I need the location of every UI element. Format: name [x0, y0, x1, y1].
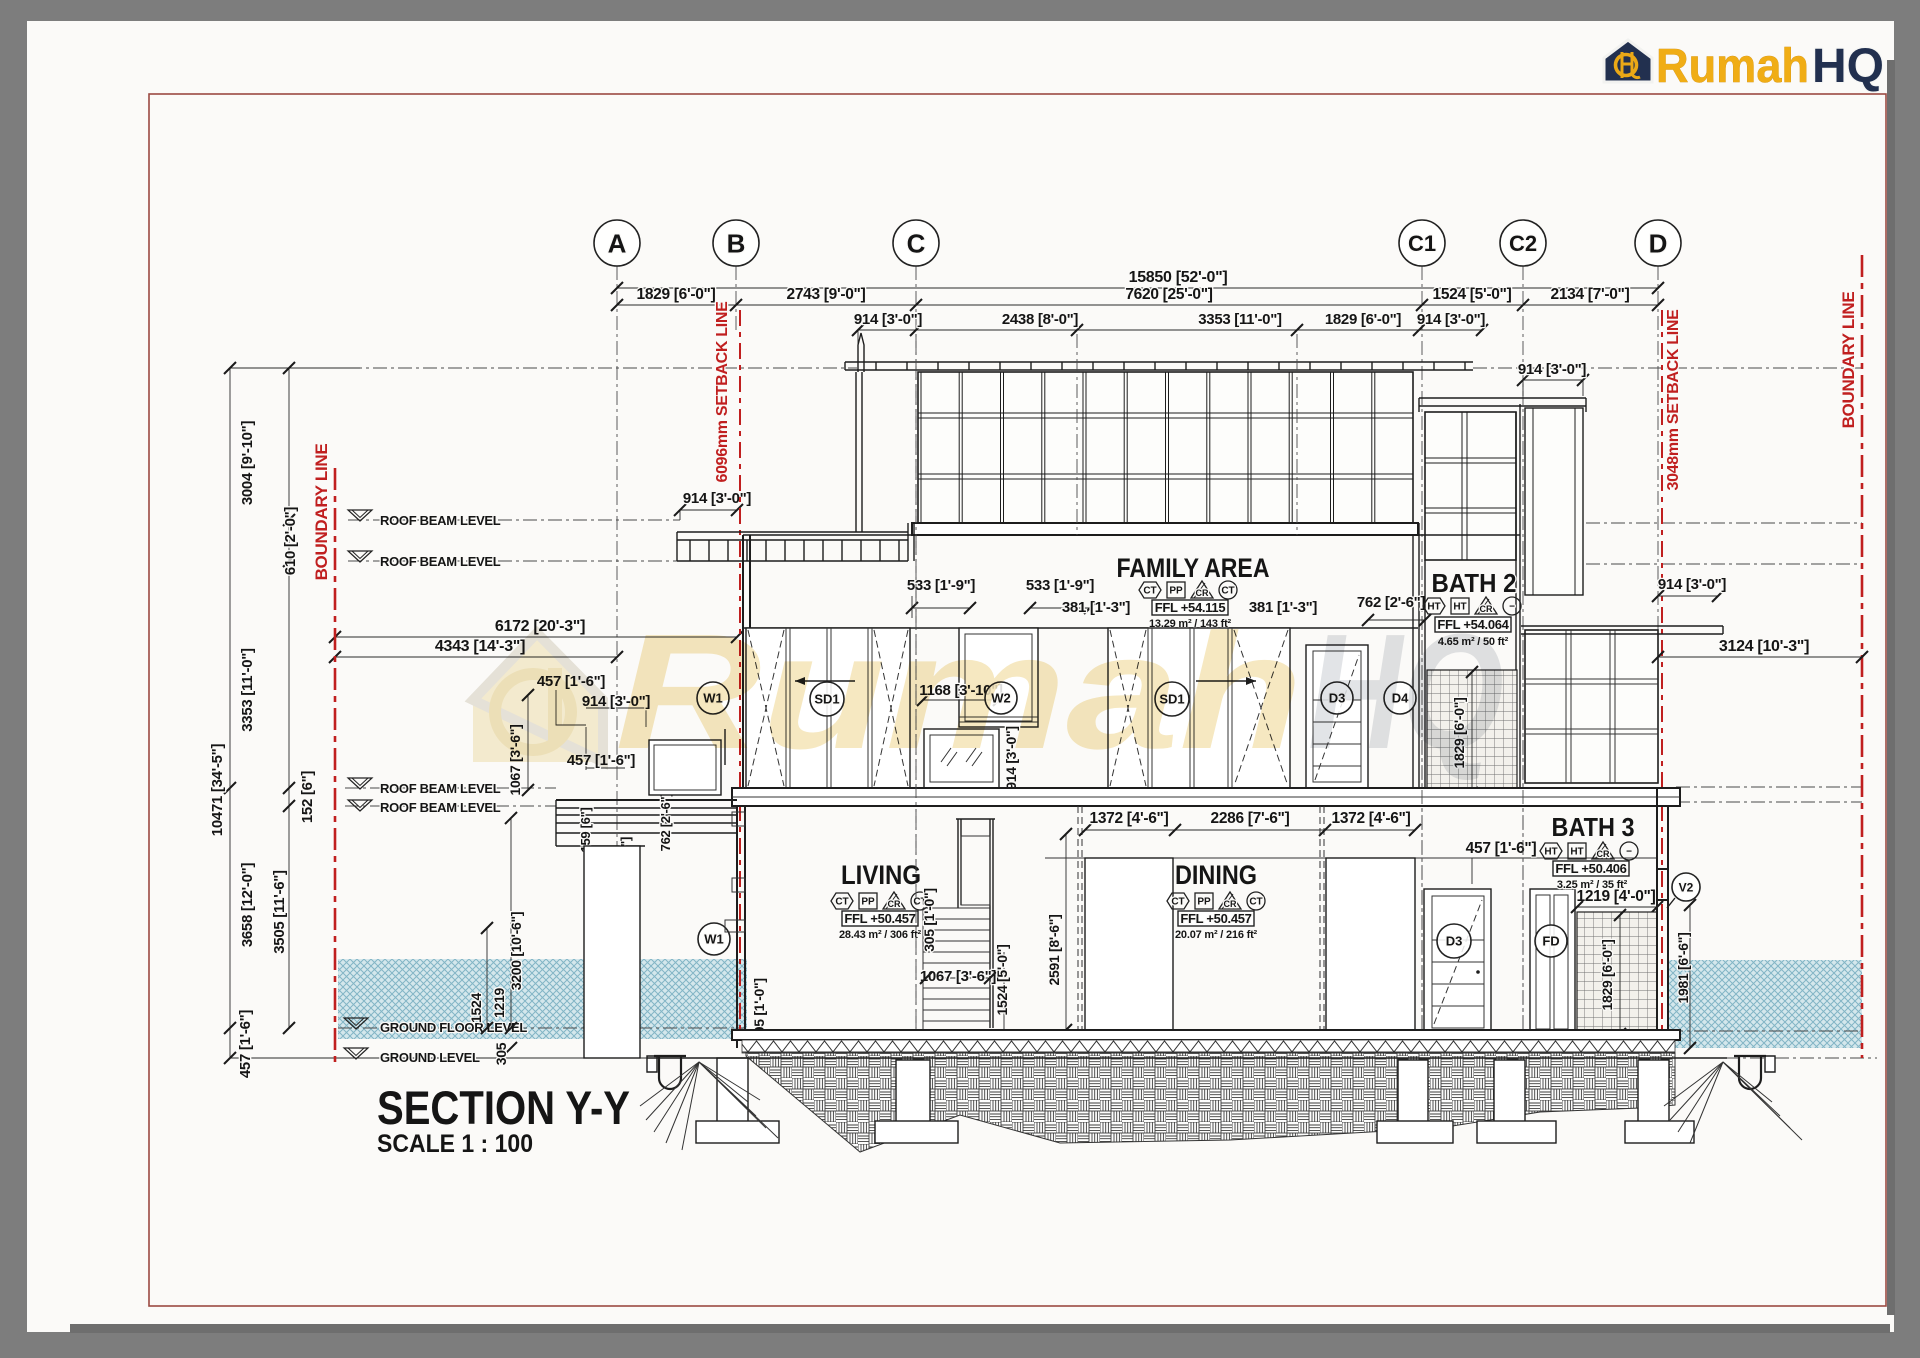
svg-text:ROOF BEAM LEVEL: ROOF BEAM LEVEL [380, 554, 501, 569]
svg-text:1219 [4'-0"]: 1219 [4'-0"] [1577, 888, 1656, 905]
svg-text:CT: CT [1171, 897, 1184, 908]
svg-text:D3: D3 [1446, 934, 1463, 949]
svg-text:20.07 m² / 216 ft²: 20.07 m² / 216 ft² [1175, 929, 1258, 941]
svg-text:B: B [727, 228, 746, 258]
svg-text:SCALE 1 : 100: SCALE 1 : 100 [377, 1130, 533, 1158]
svg-text:1524: 1524 [468, 993, 484, 1023]
svg-text:−: − [1509, 602, 1515, 613]
svg-text:FFL +50.457: FFL +50.457 [844, 911, 915, 926]
svg-text:914 [3'-0"]: 914 [3'-0"] [1518, 361, 1587, 378]
svg-text:Rumah: Rumah [1656, 40, 1809, 93]
svg-text:1829 [6'-0"]: 1829 [6'-0"] [1599, 940, 1615, 1011]
svg-text:914 [3'-0"]: 914 [3'-0"] [854, 311, 923, 328]
svg-text:W1: W1 [704, 932, 724, 947]
svg-text:PP: PP [861, 897, 875, 908]
svg-text:10471 [34'-5"]: 10471 [34'-5"] [209, 744, 226, 837]
svg-text:2438 [8'-0"]: 2438 [8'-0"] [1002, 311, 1079, 328]
svg-text:533 [1'-9"]: 533 [1'-9"] [1026, 577, 1095, 594]
svg-text:HQ: HQ [1812, 40, 1884, 93]
svg-text:1981 [6'-6"]: 1981 [6'-6"] [1675, 933, 1691, 1004]
svg-text:FFL +50.406: FFL +50.406 [1555, 861, 1626, 876]
svg-text:HT: HT [1570, 847, 1583, 858]
svg-text:C1: C1 [1408, 231, 1436, 256]
svg-text:2286 [7'-6"]: 2286 [7'-6"] [1211, 810, 1290, 827]
svg-text:HT: HT [1544, 847, 1557, 858]
svg-text:610 [2'-0"]: 610 [2'-0"] [282, 507, 299, 576]
svg-text:LIVING: LIVING [841, 860, 921, 890]
svg-text:PP: PP [1197, 897, 1211, 908]
svg-text:914 [3'-0"]: 914 [3'-0"] [1417, 311, 1486, 328]
svg-text:28.43 m² / 306 ft²: 28.43 m² / 306 ft² [839, 929, 922, 941]
svg-text:457 [1'-6"]: 457 [1'-6"] [1466, 840, 1537, 857]
svg-text:CT: CT [835, 897, 848, 908]
svg-text:2134 [7'-0"]: 2134 [7'-0"] [1551, 286, 1630, 303]
svg-text:ROOF BEAM LEVEL: ROOF BEAM LEVEL [380, 800, 501, 815]
svg-text:−: − [1626, 847, 1632, 858]
svg-text:15850 [52'-0"]: 15850 [52'-0"] [1129, 269, 1228, 286]
svg-text:914 [3'-0"]: 914 [3'-0"] [1658, 576, 1727, 593]
svg-text:FAMILY AREA: FAMILY AREA [1117, 553, 1270, 583]
svg-text:DINING: DINING [1175, 860, 1257, 890]
svg-text:3353 [11'-0"]: 3353 [11'-0"] [1198, 311, 1282, 328]
svg-text:BOUNDARY LINE: BOUNDARY LINE [312, 444, 331, 581]
svg-text:HQ: HQ [1308, 600, 1504, 783]
svg-text:CT: CT [1143, 586, 1156, 597]
svg-text:1524 [5'-0"]: 1524 [5'-0"] [994, 945, 1010, 1016]
svg-text:FD: FD [1542, 934, 1559, 949]
svg-text:3658 [12'-0"]: 3658 [12'-0"] [239, 863, 256, 948]
svg-text:GROUND LEVEL: GROUND LEVEL [380, 1050, 480, 1065]
svg-text:CR: CR [888, 899, 901, 909]
svg-text:1829 [6'-0"]: 1829 [6'-0"] [1325, 311, 1402, 328]
svg-text:1829 [6'-0"]: 1829 [6'-0"] [637, 286, 716, 303]
svg-text:3200 [10'-6"]: 3200 [10'-6"] [508, 912, 524, 990]
svg-text:CT: CT [1249, 897, 1262, 908]
svg-text:FFL +50.457: FFL +50.457 [1180, 911, 1251, 926]
svg-text:BATH 3: BATH 3 [1552, 812, 1635, 842]
svg-text:2591 [8'-6"]: 2591 [8'-6"] [1046, 915, 1062, 986]
svg-text:C: C [907, 228, 926, 258]
svg-text:ROOF BEAM LEVEL: ROOF BEAM LEVEL [380, 513, 501, 528]
svg-text:PP: PP [1169, 586, 1183, 597]
svg-text:3048mm SETBACK LINE: 3048mm SETBACK LINE [1665, 309, 1682, 491]
svg-text:3353 [11'-0"]: 3353 [11'-0"] [239, 648, 256, 732]
svg-text:533 [1'-9"]: 533 [1'-9"] [907, 577, 976, 594]
svg-text:2743 [9'-0"]: 2743 [9'-0"] [787, 286, 866, 303]
svg-text:CR: CR [1196, 588, 1209, 598]
svg-text:152 [6"]: 152 [6"] [299, 771, 316, 824]
svg-text:3004 [9'-10"]: 3004 [9'-10"] [239, 421, 256, 506]
svg-text:ROOF BEAM LEVEL: ROOF BEAM LEVEL [380, 781, 501, 796]
svg-text:914 [3'-0"]: 914 [3'-0"] [683, 490, 752, 507]
svg-text:1372 [4'-6"]: 1372 [4'-6"] [1332, 810, 1411, 827]
svg-text:305: 305 [493, 1042, 509, 1065]
svg-text:1524 [5'-0"]: 1524 [5'-0"] [1433, 286, 1512, 303]
svg-text:3505 [11'-6"]: 3505 [11'-6"] [271, 870, 288, 954]
svg-text:Rumah: Rumah [615, 600, 1303, 783]
svg-text:BOUNDARY LINE: BOUNDARY LINE [1839, 292, 1858, 429]
svg-text:BATH 2: BATH 2 [1432, 568, 1517, 598]
svg-text:CT: CT [1221, 586, 1234, 597]
svg-text:CR: CR [1597, 849, 1610, 859]
svg-text:V2: V2 [1679, 880, 1694, 894]
svg-text:305 [1'-0"]: 305 [1'-0"] [921, 888, 937, 951]
svg-text:762 [2'-6"]: 762 [2'-6"] [658, 793, 673, 852]
svg-text:1219: 1219 [491, 988, 507, 1018]
svg-text:7620 [25'-0"]: 7620 [25'-0"] [1125, 286, 1212, 303]
svg-text:3124 [10'-3"]: 3124 [10'-3"] [1719, 638, 1809, 655]
svg-text:1372 [4'-6"]: 1372 [4'-6"] [1090, 810, 1169, 827]
svg-text:A: A [608, 228, 627, 258]
svg-text:6096mm SETBACK LINE: 6096mm SETBACK LINE [714, 301, 731, 483]
svg-text:C2: C2 [1509, 231, 1537, 256]
svg-text:457 [1'-6"]: 457 [1'-6"] [237, 1010, 254, 1079]
svg-text:SECTION Y-Y: SECTION Y-Y [377, 1081, 630, 1134]
svg-text:D: D [1649, 228, 1668, 258]
svg-text:CR: CR [1224, 899, 1237, 909]
